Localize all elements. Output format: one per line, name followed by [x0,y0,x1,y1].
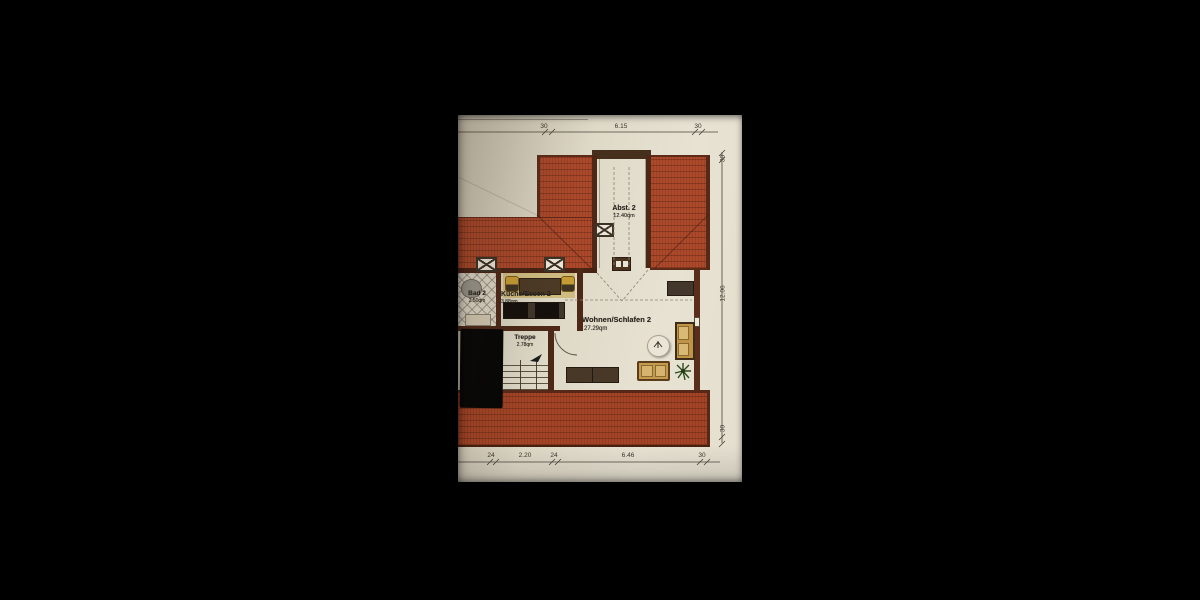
bath-fixture [465,314,491,326]
room-area-bad: 2.50qm [459,299,495,304]
dim-bottom-2: 2.20 [512,452,538,459]
roof-area-top-right [650,155,710,270]
redaction-black-patch [460,329,504,408]
dim-bottom-1: 24 [480,452,502,459]
window-symbol [612,257,631,271]
dim-bottom-5: 30 [690,452,714,459]
room-label-treppe: Treppe [506,335,544,342]
window-pane [616,261,621,267]
wardrobe [675,322,695,360]
window-pane [623,261,628,267]
dim-top-wall-right: 30 [686,123,710,130]
wardrobe-door [678,343,689,356]
stair-rail-line [520,360,521,390]
room-area-treppe: 2.78qm [506,343,544,348]
dim-right-wall-top: 30 [720,148,727,170]
room-label-wohnen-schlafen: Wohnen/Schlafen 2 [582,316,664,324]
wall-living-right-upper [694,270,700,317]
dim-bottom-3: 24 [543,452,565,459]
stair-rail-line [536,360,537,390]
wall-corridor-left [592,155,597,268]
sofa-cushion [641,365,653,377]
room-label-bad: Bad 2 [459,291,495,298]
cabinet [667,281,694,296]
chimney-x-symbol [544,257,565,272]
page-edge-line [458,119,588,120]
floorplan-photo: Abst. 2 12.40qm Bad 2 2.50qm Küche/Essen… [458,115,742,482]
corridor-wall-face-line [599,159,600,268]
kitchen-chair-right [561,276,575,292]
screenshot-background: Abst. 2 12.40qm Bad 2 2.50qm Küche/Essen… [0,0,1200,600]
chimney-x-symbol [595,223,614,237]
wall-stair-right [548,331,554,390]
room-label-kueche-essen: Küche/Essen 2 [501,291,579,298]
room-label-abstellraum: Abst. 2 [601,205,647,212]
round-table [647,335,670,357]
room-area-kueche-essen: 3.88qm [501,300,541,305]
dim-bottom-4: 6.46 [613,452,643,459]
wardrobe-door [678,326,689,340]
wall-corridor-top [592,150,651,159]
dim-top-span: 6.15 [606,123,636,130]
dim-top-wall-left: 30 [532,123,556,130]
sideboard [566,367,619,383]
dim-right-span: 12.06 [720,279,727,309]
room-area-wohnen-schlafen: 27.29qm [584,326,626,332]
stair-treads [503,360,548,390]
dim-right-wall-bottom: 30 [720,418,727,440]
kitchen-chair-left [505,276,519,292]
sofa [637,361,670,381]
sofa-cushion [655,365,666,377]
roof-area-top-left [537,155,594,218]
chimney-x-symbol [476,257,497,272]
room-area-abstellraum: 12.40qm [601,214,647,220]
